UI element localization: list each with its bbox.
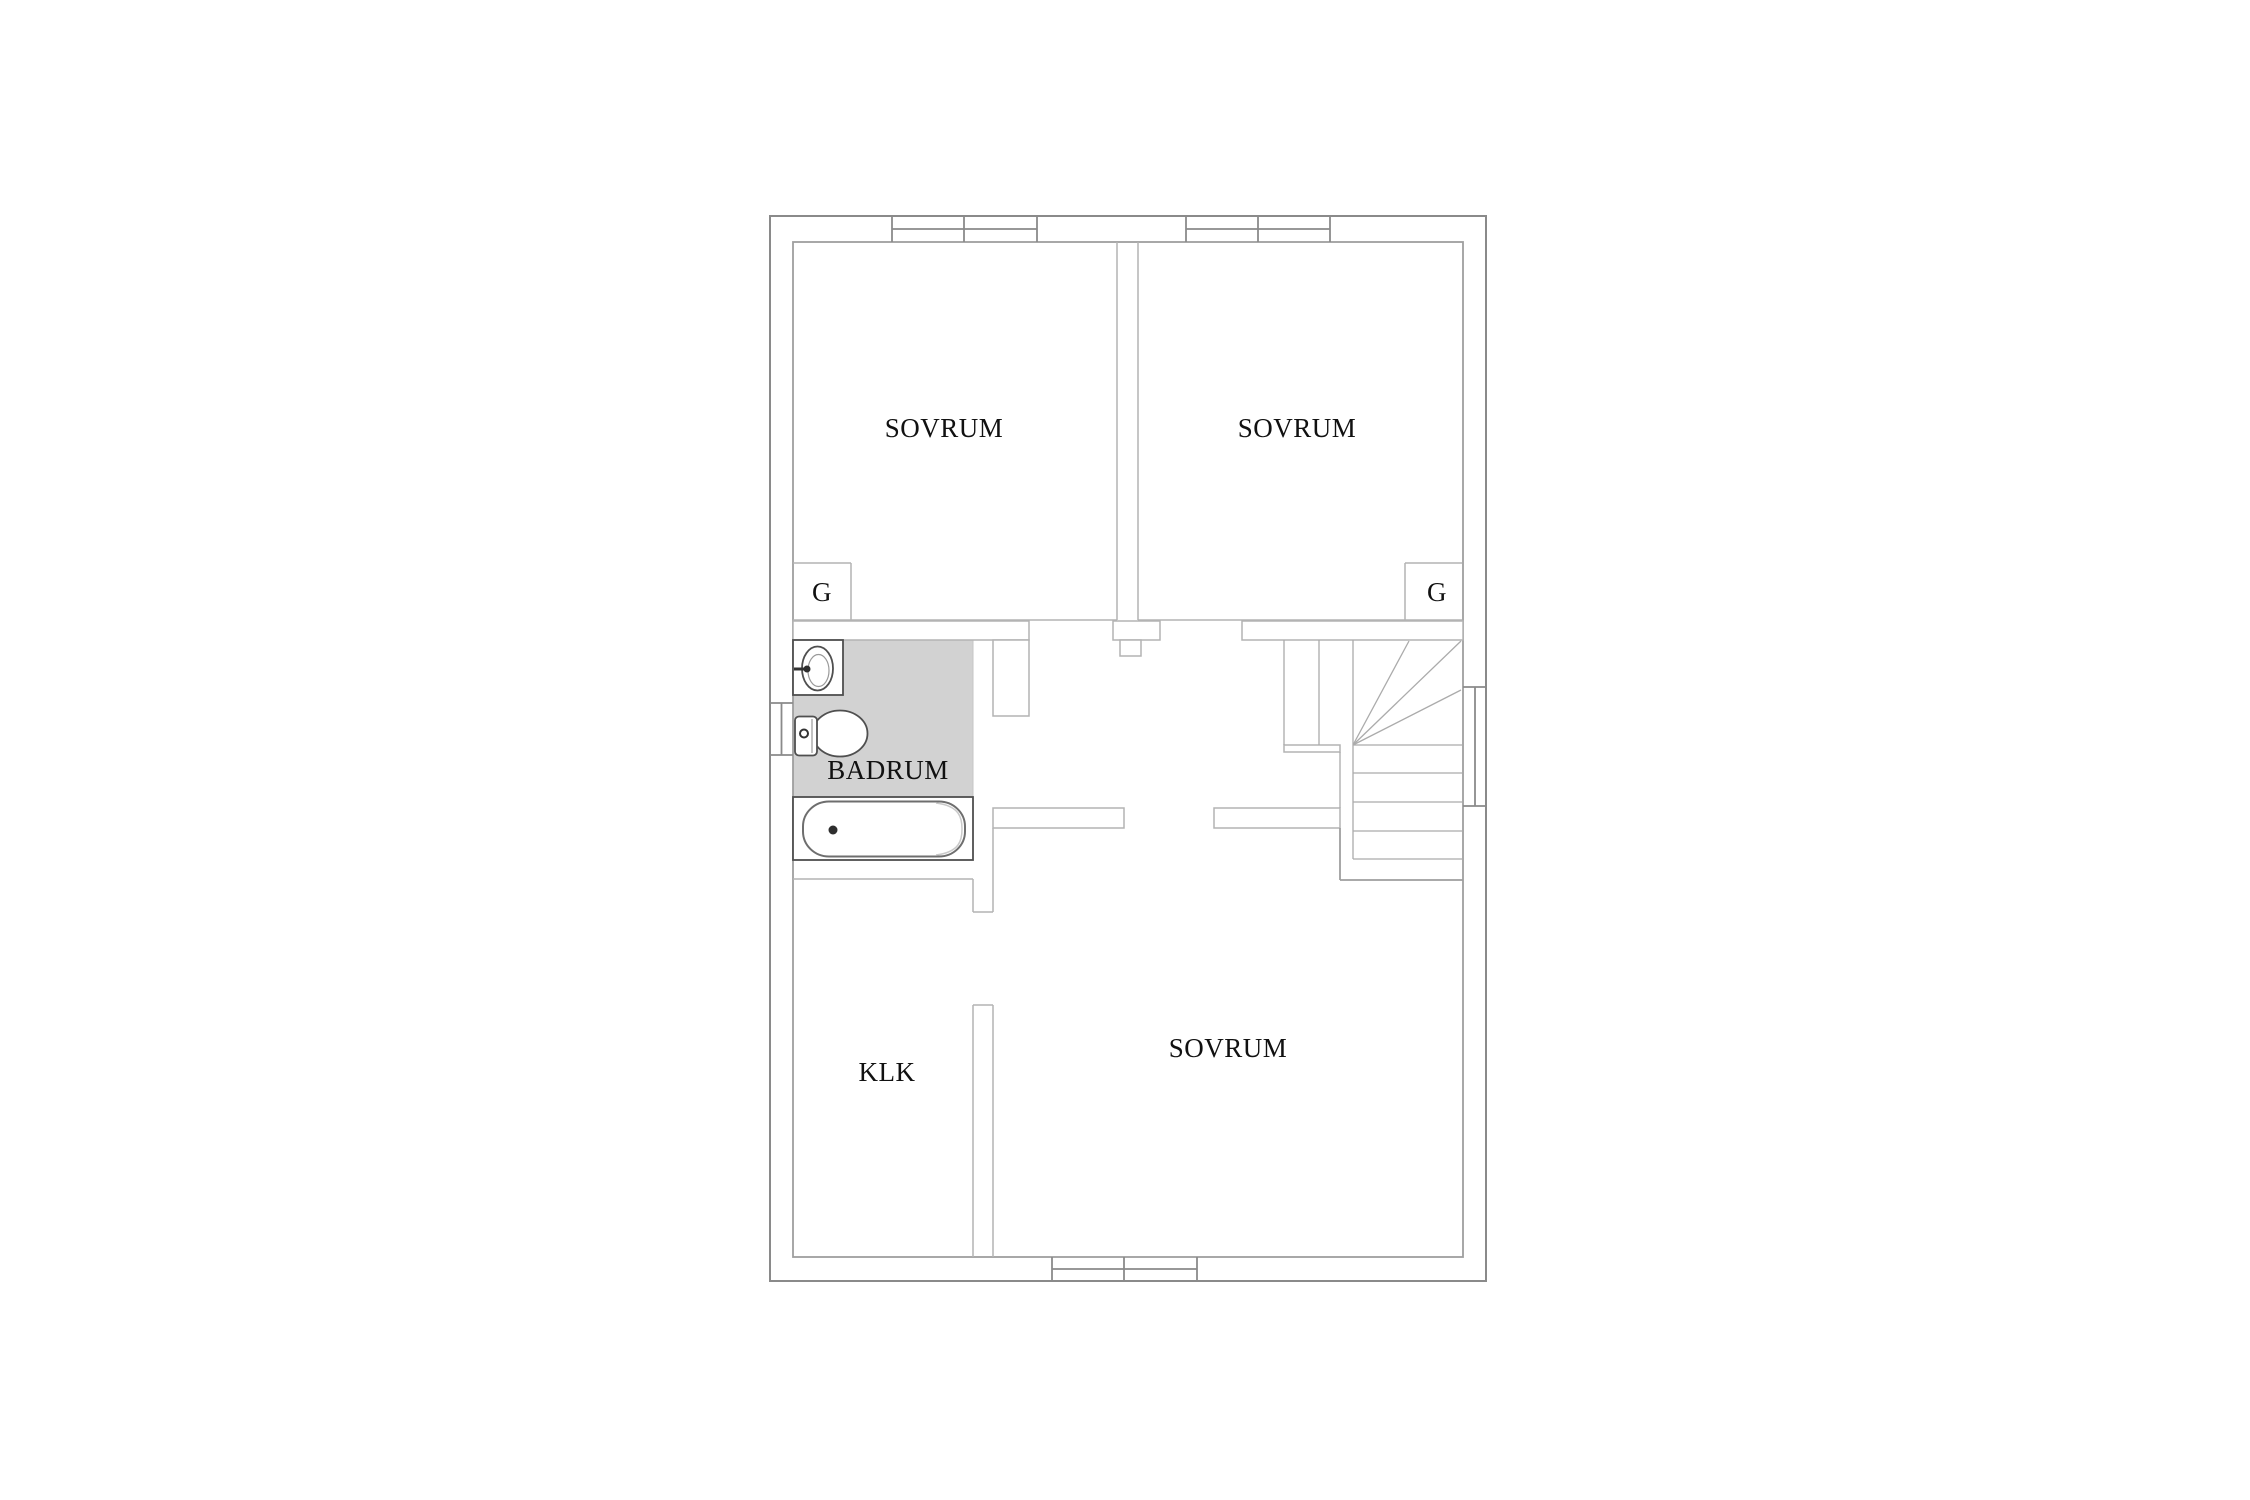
window-top-right xyxy=(1186,216,1330,242)
window-bottom xyxy=(1052,1257,1197,1281)
label-klk: KLK xyxy=(859,1057,916,1087)
bathtub-icon xyxy=(793,797,973,860)
label-sovrum-1: SOVRUM xyxy=(885,413,1004,443)
label-badrum: BADRUM xyxy=(827,755,949,785)
label-garderob-1: G xyxy=(812,577,832,607)
label-garderob-2: G xyxy=(1427,577,1447,607)
sink-icon xyxy=(793,640,843,695)
window-left xyxy=(770,703,793,755)
toilet-icon xyxy=(795,711,868,757)
label-sovrum-2: SOVRUM xyxy=(1238,413,1357,443)
label-sovrum-3: SOVRUM xyxy=(1169,1033,1288,1063)
floor-plan: SOVRUM SOVRUM SOVRUM BADRUM KLK G G xyxy=(0,0,2250,1500)
window-right xyxy=(1463,687,1486,806)
window-top-left xyxy=(892,216,1037,242)
